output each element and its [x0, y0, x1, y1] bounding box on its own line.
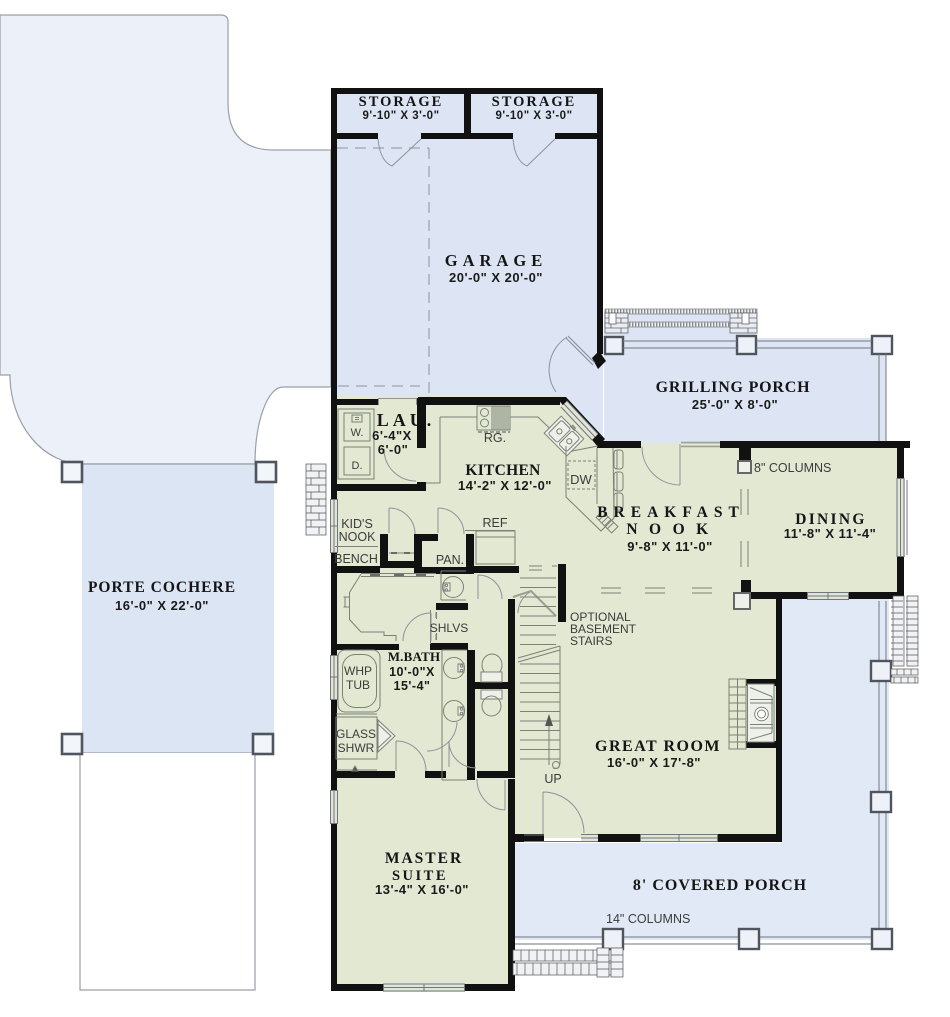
svg-text:M.BATH: M.BATH	[388, 649, 441, 664]
svg-text:BREAKFAST: BREAKFAST	[597, 504, 745, 521]
svg-text:SHWR: SHWR	[338, 741, 375, 755]
svg-text:W.: W.	[351, 427, 364, 439]
svg-text:RG.: RG.	[484, 431, 506, 445]
svg-text:16'-0" X 17'-8": 16'-0" X 17'-8"	[607, 755, 701, 770]
svg-text:REF: REF	[483, 516, 508, 530]
svg-text:STORAGE: STORAGE	[492, 94, 577, 110]
svg-text:PAN.: PAN.	[436, 553, 464, 567]
svg-text:STORAGE: STORAGE	[359, 94, 444, 110]
svg-text:9'-10" X 3'-0": 9'-10" X 3'-0"	[362, 110, 439, 122]
svg-text:25'-0" X 8'-0": 25'-0" X 8'-0"	[692, 397, 778, 412]
svg-text:TUB: TUB	[346, 678, 370, 692]
svg-text:KITCHEN: KITCHEN	[465, 462, 540, 479]
svg-text:8' COVERED PORCH: 8' COVERED PORCH	[633, 877, 807, 894]
svg-text:DW: DW	[570, 472, 592, 487]
svg-text:UP: UP	[544, 772, 561, 786]
svg-text:14" COLUMNS: 14" COLUMNS	[606, 912, 690, 926]
svg-text:MASTER: MASTER	[385, 850, 463, 867]
svg-text:SHLVS: SHLVS	[430, 621, 468, 635]
svg-text:16'-0" X 22'-0": 16'-0" X 22'-0"	[115, 598, 209, 613]
svg-text:15'-4": 15'-4"	[394, 679, 431, 693]
svg-text:BENCH: BENCH	[334, 552, 378, 566]
svg-text:8" COLUMNS: 8" COLUMNS	[754, 461, 831, 475]
svg-text:6'-4"X: 6'-4"X	[372, 428, 412, 443]
svg-text:20'-0" X 20'-0": 20'-0" X 20'-0"	[449, 270, 543, 285]
svg-text:NOOK: NOOK	[626, 521, 719, 538]
svg-text:KID'S: KID'S	[341, 517, 373, 531]
svg-text:STAIRS: STAIRS	[570, 634, 612, 648]
svg-text:NOOK: NOOK	[339, 530, 376, 544]
svg-text:D.: D.	[352, 460, 363, 472]
svg-text:WHP: WHP	[344, 664, 372, 678]
svg-text:LAU.: LAU.	[377, 410, 436, 430]
svg-text:9'-8" X 11'-0": 9'-8" X 11'-0"	[627, 539, 713, 554]
svg-text:GLASS: GLASS	[336, 727, 376, 741]
svg-text:10'-0"X: 10'-0"X	[389, 665, 435, 679]
svg-text:14'-2" X 12'-0": 14'-2" X 12'-0"	[458, 478, 552, 493]
svg-text:6'-0": 6'-0"	[378, 442, 409, 457]
svg-text:13'-4" X 16'-0": 13'-4" X 16'-0"	[375, 882, 469, 897]
svg-text:GRILLING PORCH: GRILLING PORCH	[656, 379, 811, 396]
svg-text:9'-10" X 3'-0": 9'-10" X 3'-0"	[495, 110, 572, 122]
svg-text:GARAGE: GARAGE	[445, 251, 547, 270]
svg-text:GREAT ROOM: GREAT ROOM	[595, 738, 721, 755]
svg-text:PORTE COCHERE: PORTE COCHERE	[88, 579, 236, 596]
svg-text:11'-8" X 11'-4": 11'-8" X 11'-4"	[784, 526, 877, 541]
